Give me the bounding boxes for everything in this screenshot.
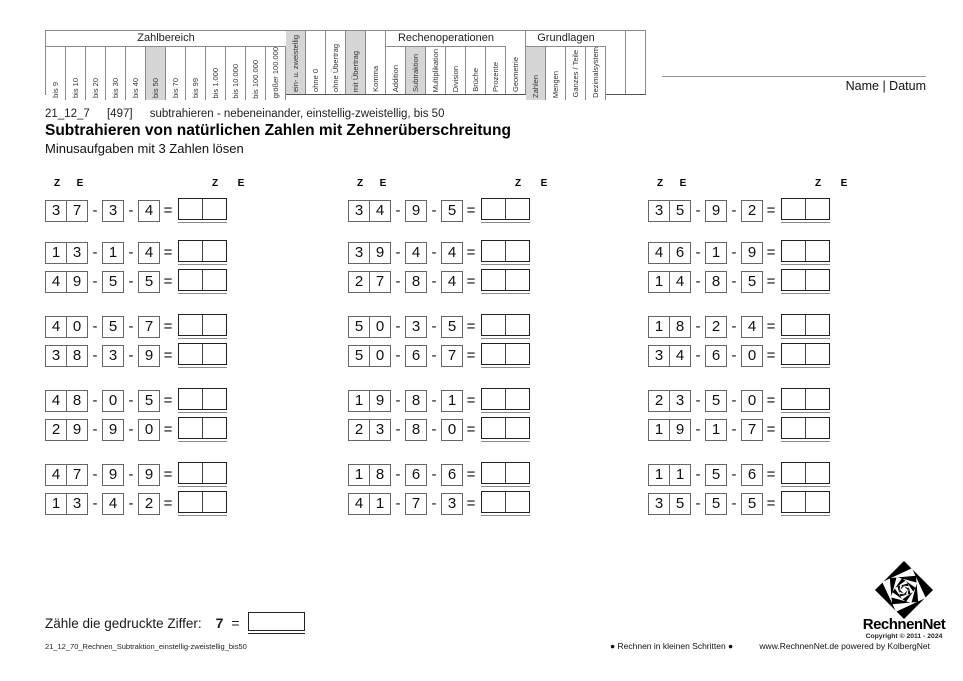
answer-ones-cell: [505, 344, 529, 364]
minuend-box: 34: [648, 345, 691, 367]
tens-label: Z: [350, 178, 370, 189]
subtrahend-box-2: 9: [138, 345, 160, 367]
header-column-label: größer 100.000: [272, 47, 280, 100]
minus-sign: -: [727, 202, 741, 219]
minus-sign: -: [727, 318, 741, 335]
subtrahend-box-1: 6: [405, 464, 427, 486]
minus-sign: -: [427, 392, 441, 409]
header-column-label: Geometrie: [512, 57, 520, 94]
digit-cell: 6: [669, 243, 690, 263]
subtrahend-box-2: 9: [138, 464, 160, 486]
minus-sign: -: [427, 244, 441, 261]
minuend-box: 14: [648, 271, 691, 293]
name-date-field: Name | Datum: [662, 76, 926, 93]
digit-cell: 5: [669, 494, 690, 514]
equals-sign: =: [160, 202, 176, 219]
equals-sign: =: [763, 495, 779, 512]
subtrahend-box-2: 3: [441, 493, 463, 515]
equals-sign: =: [463, 244, 479, 261]
digit-cell: 4: [369, 201, 390, 221]
digit-cell: 1: [669, 465, 690, 485]
minus-sign: -: [124, 318, 138, 335]
minuend-box: 38: [45, 345, 88, 367]
answer-ones-cell: [805, 315, 829, 335]
header-column-label: Prozente: [492, 62, 500, 94]
header-column-bis-1-000: bis 1.000: [206, 47, 226, 100]
problem-row: 14-8-5=: [648, 269, 908, 294]
equals-sign: =: [763, 202, 779, 219]
header-column-subtraktion: Subtraktion: [406, 47, 426, 94]
subtrahend-box-1: 1: [102, 242, 124, 264]
answer-ones-cell: [505, 463, 529, 483]
problem-row: 18-2-4=: [648, 314, 908, 339]
digit-cell: 1: [349, 465, 369, 485]
answer-tens-cell: [782, 492, 805, 512]
answer-tens-cell: [482, 418, 505, 438]
header-column-bis-100-000: bis 100.000: [246, 47, 266, 100]
digit-cell: 5: [349, 346, 369, 366]
minus-sign: -: [727, 466, 741, 483]
equals-sign: =: [463, 347, 479, 364]
logo-copyright: Copyright © 2011 - 2024: [845, 633, 963, 640]
digit-cell: 3: [46, 201, 66, 221]
answer-box: [781, 198, 830, 223]
ones-label: E: [373, 178, 393, 189]
answer-ones-cell: [805, 344, 829, 364]
digit-cell: 0: [369, 346, 390, 366]
problem-row: 19-1-7=: [648, 417, 908, 442]
minus-sign: -: [124, 273, 138, 290]
problem-row: 40-5-7=: [45, 314, 305, 339]
problem-row: 34-9-5=: [348, 198, 608, 223]
digit-cell: 3: [649, 346, 669, 366]
header-column-label: Komma: [372, 66, 380, 94]
ones-label: E: [531, 178, 557, 189]
answer-box: [481, 417, 530, 442]
minus-sign: -: [391, 202, 405, 219]
subtrahend-box-1: 3: [405, 316, 427, 338]
digit-cell: 3: [349, 243, 369, 263]
answer-tens-cell: [179, 492, 202, 512]
digit-cell: 4: [46, 465, 66, 485]
answer-tens-cell: [179, 270, 202, 290]
header-column-größer-100-000: größer 100.000: [266, 47, 286, 100]
header-column-label: bis 100.000: [252, 60, 260, 101]
digit-cell: 4: [46, 391, 66, 411]
minus-sign: -: [691, 244, 705, 261]
tens-label: Z: [505, 178, 531, 189]
logo-name: RechnenNet: [845, 616, 963, 633]
digit-cell: 1: [46, 494, 66, 514]
equals-sign: =: [463, 273, 479, 290]
subtrahend-box-1: 9: [102, 419, 124, 441]
minuend-box: 23: [648, 390, 691, 412]
subtrahend-box-1: 3: [102, 200, 124, 222]
answer-ones-cell: [505, 270, 529, 290]
digit-cell: 1: [349, 391, 369, 411]
header-column-addition: Addition: [386, 47, 406, 94]
digit-cell: 7: [66, 465, 87, 485]
subtrahend-box-1: 1: [705, 242, 727, 264]
header-column-label: bis 10.000: [232, 64, 240, 101]
answer-ones-cell: [202, 463, 226, 483]
tens-label: Z: [47, 178, 67, 189]
header-column-bis-70: bis 70: [166, 47, 186, 100]
minus-sign: -: [124, 466, 138, 483]
digit-cell: 3: [649, 201, 669, 221]
subtrahend-box-1: 2: [705, 316, 727, 338]
header-group-title: Zahlbereich: [46, 31, 286, 47]
header-column-empty: [626, 31, 646, 94]
header-column-zahlen: Zahlen: [526, 47, 546, 100]
answer-box: [781, 314, 830, 339]
subtrahend-box-1: 5: [102, 271, 124, 293]
digit-cell: 0: [369, 317, 390, 337]
header-column-geometrie: Geometrie: [506, 31, 526, 94]
minuend-box: 37: [45, 200, 88, 222]
minuend-box: 40: [45, 316, 88, 338]
minus-sign: -: [124, 392, 138, 409]
answer-ones-cell: [202, 344, 226, 364]
subtrahend-box-1: 3: [102, 345, 124, 367]
header-column-label: bis 30: [112, 78, 120, 100]
subtrahend-box-1: 8: [405, 419, 427, 441]
header-column-label: bis 1.000: [212, 68, 220, 100]
problem-row: 13-1-4=: [45, 240, 305, 265]
subtrahend-box-1: 7: [405, 493, 427, 515]
equals-sign: =: [160, 421, 176, 438]
header-column-label: Addition: [392, 65, 400, 94]
minus-sign: -: [691, 421, 705, 438]
subtrahend-box-1: 4: [405, 242, 427, 264]
header-column-label: ohne 0: [312, 69, 320, 94]
minus-sign: -: [427, 273, 441, 290]
answer-ones-cell: [505, 492, 529, 512]
problem-row: 50-3-5=: [348, 314, 608, 339]
header-column-ohne-0: ohne 0: [306, 31, 326, 94]
equals-sign: =: [763, 421, 779, 438]
equals-sign: =: [763, 347, 779, 364]
header-columns: ein- u. zweistelligohne 0ohne Übertragmi…: [286, 30, 386, 94]
header-column-label: Multiplikation: [432, 49, 440, 94]
equals-sign: =: [463, 495, 479, 512]
count-digit-label: Zähle die gedruckte Ziffer:: [45, 616, 202, 631]
tens-label: Z: [805, 178, 831, 189]
equals-sign: =: [160, 466, 176, 483]
ones-label: E: [228, 178, 254, 189]
problem-row: 37-3-4=: [45, 198, 305, 223]
digit-cell: 7: [369, 272, 390, 292]
problem-row: 41-7-3=: [348, 491, 608, 516]
minuend-box: 27: [348, 271, 391, 293]
digit-cell: 8: [66, 391, 87, 411]
header-group-zahlbereich: Zahlbereichbis 9bis 10bis 20bis 30bis 40…: [46, 30, 286, 94]
subtrahend-box-2: 2: [138, 493, 160, 515]
minuend-box: 23: [348, 419, 391, 441]
minuend-box: 13: [45, 493, 88, 515]
digit-cell: 9: [369, 243, 390, 263]
header-column-bis-10-000: bis 10.000: [226, 47, 246, 100]
minus-sign: -: [691, 347, 705, 364]
subtrahend-box-2: 0: [741, 345, 763, 367]
answer-box: [178, 343, 227, 368]
digit-cell: 8: [66, 346, 87, 366]
minus-sign: -: [391, 392, 405, 409]
answer-tens-cell: [482, 315, 505, 335]
answer-box: [481, 388, 530, 413]
equals-sign: =: [160, 244, 176, 261]
subtrahend-box-1: 9: [705, 200, 727, 222]
digit-cell: 9: [369, 391, 390, 411]
minus-sign: -: [691, 466, 705, 483]
answer-box: [781, 462, 830, 487]
minus-sign: -: [691, 202, 705, 219]
header-column-mengen: Mengen: [546, 47, 566, 100]
minus-sign: -: [691, 392, 705, 409]
count-digit-value: 7: [216, 615, 224, 631]
worksheet-code: 21_12_7: [45, 108, 90, 120]
subtrahend-box-1: 9: [405, 200, 427, 222]
digit-cell: 9: [66, 272, 87, 292]
header-column-brüche: Brüche: [466, 47, 486, 94]
answer-box: [481, 343, 530, 368]
worksheet-filename: 21_12_70_Rechnen_Subtraktion_einstellig-…: [45, 642, 247, 651]
header-column-division: Division: [446, 47, 466, 94]
answer-ones-cell: [202, 241, 226, 261]
worksheet-id: [497]: [107, 108, 133, 120]
problem-row: 23-8-0=: [348, 417, 608, 442]
answer-box: [781, 240, 830, 265]
problem-column-2: ZEZE34-9-5=39-4-4=27-8-4=50-3-5=50-6-7=1…: [348, 178, 608, 516]
minus-sign: -: [727, 347, 741, 364]
minus-sign: -: [691, 495, 705, 512]
minus-sign: -: [427, 347, 441, 364]
minus-sign: -: [727, 244, 741, 261]
subtrahend-box-1: 0: [102, 390, 124, 412]
answer-tens-cell: [179, 315, 202, 335]
equals-sign: =: [463, 392, 479, 409]
answer-tens-cell: [179, 389, 202, 409]
minus-sign: -: [391, 347, 405, 364]
digit-cell: 3: [66, 243, 87, 263]
digit-cell: 1: [649, 465, 669, 485]
header-column-bis-50: bis 50: [146, 47, 166, 100]
digit-cell: 1: [649, 420, 669, 440]
minus-sign: -: [391, 495, 405, 512]
answer-tens-cell: [179, 241, 202, 261]
subtrahend-box-1: 5: [102, 316, 124, 338]
minus-sign: -: [391, 318, 405, 335]
subtrahend-box-1: 8: [405, 390, 427, 412]
answer-tens-cell: [782, 315, 805, 335]
answer-box: [178, 388, 227, 413]
answer-ones-cell: [202, 492, 226, 512]
answer-tens-cell: [179, 418, 202, 438]
answer-tens-cell: [782, 418, 805, 438]
problem-row: 38-3-9=: [45, 343, 305, 368]
subtrahend-box-2: 0: [741, 390, 763, 412]
answer-tens-cell: [782, 270, 805, 290]
subtrahend-box-2: 4: [441, 242, 463, 264]
minus-sign: -: [124, 421, 138, 438]
problem-column-3: ZEZE35-9-2=46-1-9=14-8-5=18-2-4=34-6-0=2…: [648, 178, 908, 516]
subtrahend-box-1: 1: [705, 419, 727, 441]
answer-tens-cell: [482, 270, 505, 290]
answer-box: [481, 462, 530, 487]
digit-cell: 3: [46, 346, 66, 366]
page-title: Subtrahieren von natürlichen Zahlen mit …: [45, 122, 511, 140]
problem-row: 50-6-7=: [348, 343, 608, 368]
answer-box: [178, 240, 227, 265]
header-column-label: mit Übertrag: [352, 51, 360, 94]
subtrahend-box-1: 5: [705, 493, 727, 515]
header-group-grundlagen: GrundlagenZahlenMengenGanzes / TeileDezi…: [526, 30, 606, 94]
minus-sign: -: [88, 244, 102, 261]
rechnennet-logo-icon: [872, 560, 936, 620]
header-column-label: bis 9: [52, 82, 60, 100]
minuend-box: 35: [648, 200, 691, 222]
minus-sign: -: [124, 347, 138, 364]
equals-sign: =: [160, 318, 176, 335]
header-column-bis-10: bis 10: [66, 47, 86, 100]
subtrahend-box-2: 0: [138, 419, 160, 441]
minus-sign: -: [88, 273, 102, 290]
worksheet-description: subtrahieren - nebeneinander, einstellig…: [150, 108, 445, 120]
tens-ones-header: ZEZE: [45, 178, 305, 198]
minus-sign: -: [124, 244, 138, 261]
answer-tens-cell: [179, 463, 202, 483]
answer-tens-cell: [782, 463, 805, 483]
digit-cell: 9: [66, 420, 87, 440]
equals-sign: =: [160, 495, 176, 512]
problem-row: 48-0-5=: [45, 388, 305, 413]
header-group-title: Rechenoperationen: [386, 31, 506, 47]
minus-sign: -: [391, 273, 405, 290]
count-answer-box: [248, 612, 305, 634]
minus-sign: -: [427, 202, 441, 219]
equals-sign: =: [763, 244, 779, 261]
minus-sign: -: [391, 466, 405, 483]
tens-label: Z: [650, 178, 670, 189]
subtrahend-box-2: 4: [741, 316, 763, 338]
equals-sign: =: [763, 273, 779, 290]
answer-ones-cell: [505, 389, 529, 409]
subtrahend-box-2: 0: [441, 419, 463, 441]
answer-ones-cell: [505, 418, 529, 438]
minuend-box: 50: [348, 345, 391, 367]
minuend-box: 19: [648, 419, 691, 441]
subtrahend-box-1: 9: [102, 464, 124, 486]
digit-cell: 4: [349, 494, 369, 514]
minus-sign: -: [691, 318, 705, 335]
answer-box: [178, 269, 227, 294]
digit-cell: 1: [369, 494, 390, 514]
answer-ones-cell: [505, 199, 529, 219]
digit-cell: 3: [369, 420, 390, 440]
digit-cell: 2: [649, 391, 669, 411]
header-column-label: bis 20: [92, 78, 100, 100]
answer-ones-cell: [202, 418, 226, 438]
header-column-komma: Komma: [366, 31, 386, 94]
worksheet-meta-line: 21_12_7 [497] subtrahieren - nebeneinand…: [45, 108, 444, 120]
header-column-label: ein- u. zweistellig: [292, 35, 300, 94]
answer-box: [481, 491, 530, 516]
answer-box: [178, 198, 227, 223]
subtrahend-box-2: 2: [741, 200, 763, 222]
minus-sign: -: [124, 202, 138, 219]
digit-cell: 4: [46, 317, 66, 337]
minuend-box: 13: [45, 242, 88, 264]
answer-box: [781, 417, 830, 442]
equals-sign: =: [463, 421, 479, 438]
worksheet-page: Zahlbereichbis 9bis 10bis 20bis 30bis 40…: [0, 0, 963, 681]
digit-cell: 5: [669, 201, 690, 221]
answer-box: [781, 343, 830, 368]
subtrahend-box-2: 6: [441, 464, 463, 486]
answer-box: [178, 491, 227, 516]
minuend-box: 47: [45, 464, 88, 486]
header-column-bis-9: bis 9: [46, 47, 66, 100]
minuend-box: 34: [348, 200, 391, 222]
header-column-ein-u-zweistellig: ein- u. zweistellig: [286, 31, 306, 94]
answer-tens-cell: [179, 344, 202, 364]
answer-ones-cell: [805, 463, 829, 483]
minus-sign: -: [727, 392, 741, 409]
page-subtitle: Minusaufgaben mit 3 Zahlen lösen: [45, 141, 244, 156]
problem-row: 34-6-0=: [648, 343, 908, 368]
answer-ones-cell: [805, 389, 829, 409]
answer-box: [178, 417, 227, 442]
minus-sign: -: [88, 392, 102, 409]
minus-sign: -: [691, 273, 705, 290]
subtrahend-box-2: 9: [741, 242, 763, 264]
problem-row: 49-5-5=: [45, 269, 305, 294]
answer-tens-cell: [482, 241, 505, 261]
answer-ones-cell: [505, 241, 529, 261]
subtrahend-box-1: 5: [705, 464, 727, 486]
minuend-box: 41: [348, 493, 391, 515]
header-column-label: bis 50: [152, 78, 160, 100]
problem-row: 39-4-4=: [348, 240, 608, 265]
header-column-mit-übertrag: mit Übertrag: [346, 31, 366, 94]
header-column-bis-40: bis 40: [126, 47, 146, 100]
answer-tens-cell: [482, 463, 505, 483]
minuend-box: 29: [45, 419, 88, 441]
answer-box: [481, 269, 530, 294]
digit-cell: 2: [349, 272, 369, 292]
digit-cell: 1: [649, 272, 669, 292]
answer-tens-cell: [482, 492, 505, 512]
tens-ones-header: ZEZE: [648, 178, 908, 198]
answer-box: [781, 388, 830, 413]
minuend-box: 49: [45, 271, 88, 293]
subtrahend-box-1: 5: [705, 390, 727, 412]
subtrahend-box-2: 1: [441, 390, 463, 412]
digit-cell: 4: [669, 272, 690, 292]
subtrahend-box-1: 8: [405, 271, 427, 293]
digit-cell: 2: [46, 420, 66, 440]
digit-cell: 8: [669, 317, 690, 337]
answer-tens-cell: [782, 389, 805, 409]
problem-column-1: ZEZE37-3-4=13-1-4=49-5-5=40-5-7=38-3-9=4…: [45, 178, 305, 516]
answer-ones-cell: [505, 315, 529, 335]
header-column-label: bis 99: [192, 78, 200, 100]
header-column-label: Zahlen: [532, 75, 540, 100]
minuend-box: 35: [648, 493, 691, 515]
subtrahend-box-2: 5: [741, 271, 763, 293]
problem-row: 18-6-6=: [348, 462, 608, 487]
header-column-label: Ganzes / Teile: [572, 50, 580, 99]
